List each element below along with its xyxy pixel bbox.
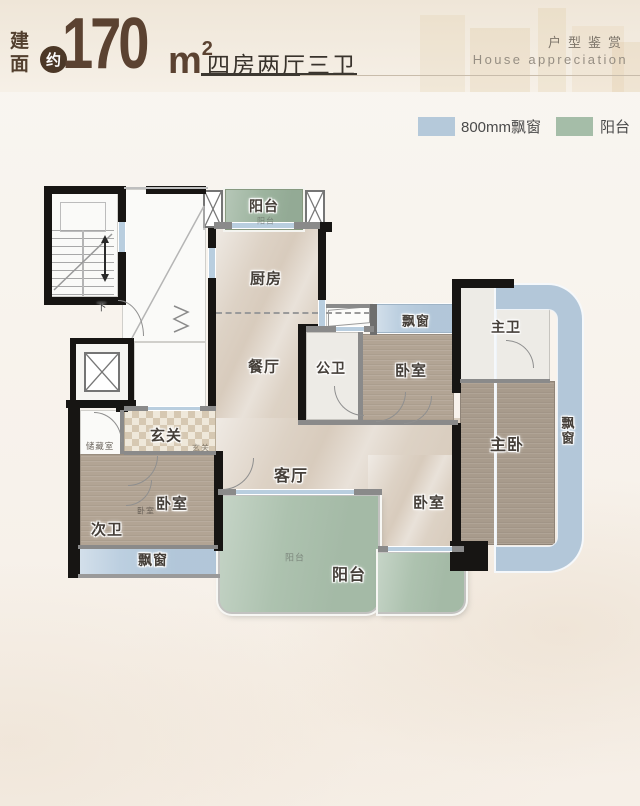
label-balcony-top-mark: 阳台 bbox=[257, 216, 275, 227]
label-public-bath: 公卫 bbox=[316, 358, 346, 378]
arrow-up-icon bbox=[101, 235, 109, 243]
label-bedroom-mid: 卧室 bbox=[395, 360, 427, 381]
dashed-divider bbox=[326, 312, 370, 314]
wall-segment bbox=[452, 423, 461, 545]
wall-segment bbox=[78, 545, 218, 549]
poster-canvas: 建面 约 170 m2 四房两厅三卫 户型鉴赏 House appreciati… bbox=[0, 0, 640, 806]
floor-plan: 阳台 阳台 厨房 餐厅 公卫 飘窗 卧室 主卫 主卧 飘窗 玄关 玄关 储藏室 … bbox=[0, 0, 640, 806]
arrow-down-icon bbox=[101, 274, 109, 282]
wall-segment bbox=[44, 297, 126, 305]
wall-segment bbox=[452, 279, 461, 393]
wall-segment bbox=[298, 420, 364, 425]
label-dining: 餐厅 bbox=[248, 356, 280, 377]
label-bay-left: 飘窗 bbox=[138, 550, 168, 570]
window-strip bbox=[336, 326, 364, 332]
wall-segment bbox=[208, 228, 216, 248]
window-strip bbox=[388, 546, 452, 552]
label-foyer: 玄关 bbox=[150, 425, 182, 446]
wall-segment bbox=[44, 186, 126, 194]
label-bay-top: 飘窗 bbox=[402, 311, 430, 330]
wall-segment bbox=[118, 186, 126, 222]
window-strip bbox=[236, 489, 354, 495]
room-corridor bbox=[134, 342, 206, 408]
wall-segment bbox=[78, 574, 220, 578]
wall-segment bbox=[452, 279, 514, 288]
label-stair-down: 下 bbox=[97, 299, 108, 314]
label-master-bedroom: 主卧 bbox=[490, 431, 524, 455]
window-strip bbox=[208, 248, 216, 278]
label-kitchen: 厨房 bbox=[250, 268, 282, 289]
wall-segment bbox=[124, 187, 208, 189]
label-master-bath: 主卫 bbox=[491, 317, 521, 337]
label-bay-right: 飘窗 bbox=[558, 416, 577, 446]
wall-segment bbox=[298, 324, 306, 424]
label-second-bath: 次卫 bbox=[91, 519, 123, 540]
zigzag-door-icon bbox=[172, 304, 192, 334]
window-strip bbox=[148, 406, 200, 411]
label-living: 客厅 bbox=[274, 462, 308, 486]
wall-segment bbox=[208, 278, 216, 406]
window-strip bbox=[118, 222, 126, 252]
label-bedroom-bottom: 卧室 bbox=[413, 492, 445, 513]
stair-direction-line bbox=[104, 242, 106, 274]
dashed-divider bbox=[216, 312, 318, 314]
label-balcony-bottom: 阳台 bbox=[332, 561, 366, 585]
label-balcony-bottom-mark: 阳台 bbox=[285, 551, 305, 564]
label-storage: 储藏室 bbox=[86, 440, 115, 452]
label-balcony-top: 阳台 bbox=[249, 196, 279, 216]
window-strip bbox=[318, 300, 326, 326]
elevator-x-icon bbox=[84, 352, 120, 392]
wall-segment bbox=[118, 252, 126, 305]
wall-segment bbox=[460, 379, 550, 383]
wall-segment bbox=[326, 304, 374, 308]
label-bedroom-left: 卧室 bbox=[156, 493, 188, 514]
wall-segment bbox=[44, 186, 52, 305]
label-bedroom-left-mark: 卧室 bbox=[137, 506, 155, 517]
wall-segment bbox=[68, 404, 80, 578]
label-foyer-mark: 玄关 bbox=[192, 443, 210, 454]
